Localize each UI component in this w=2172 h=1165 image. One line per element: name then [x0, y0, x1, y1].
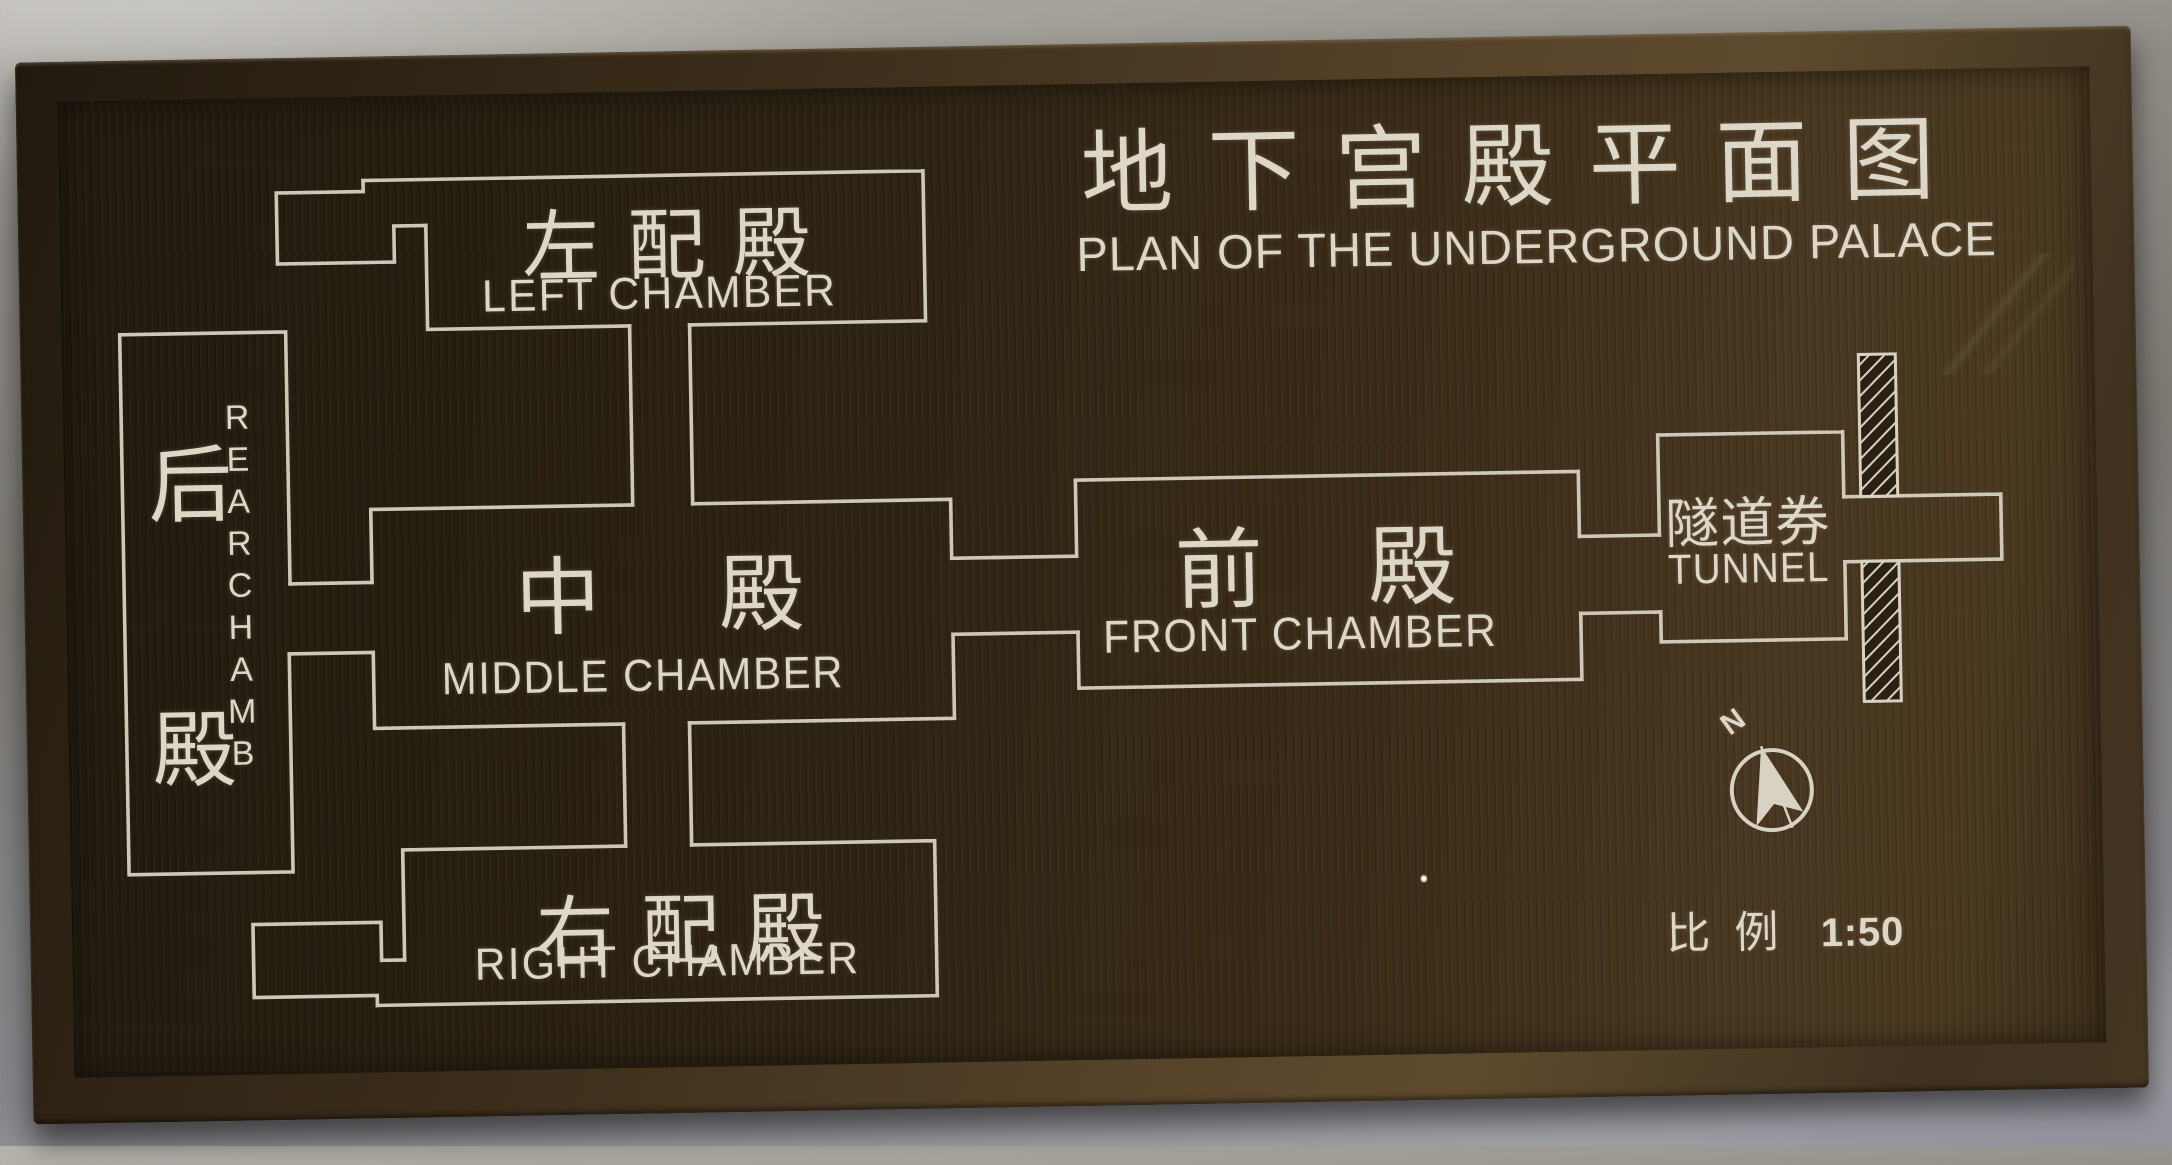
corridor-middle-right [624, 723, 692, 846]
tunnel-label-en: TUNNEL [1668, 543, 1830, 594]
plaque-scene: 地下宫殿平面图 PLAN OF THE UNDERGROUND PALACE 左… [0, 0, 2172, 1165]
scale-label: 比例 [1666, 907, 1803, 960]
compass-icon [1731, 745, 1812, 830]
right-chamber-label-en: RIGHT CHAMBER [474, 932, 861, 991]
tunnel-wall-hatch-upper [1858, 354, 1897, 497]
tunnel-wall-hatch-lower [1862, 561, 1901, 702]
front-chamber-label-en: FRONT CHAMBER [1103, 603, 1498, 664]
right-antechamber-outline [253, 922, 405, 1008]
rear-chamber-label-en: REAR CHAMB [219, 396, 262, 775]
scale-note: 比例1:50 [1666, 894, 1905, 962]
dust-speck-highlight [1420, 874, 1427, 883]
entrance-corridor [1844, 494, 2002, 562]
corridor-left-middle [630, 325, 693, 505]
corridor-middle-front [994, 556, 1078, 633]
photo-of-plaque: { "sign": { "title": { "cn": "地下宫殿平面图", … [0, 0, 2172, 1146]
scale-value: 1:50 [1820, 910, 1904, 955]
corridor-front-tunnel [1579, 535, 1660, 613]
middle-chamber-label-cn: 中殿 [514, 523, 924, 653]
title-chinese: 地下宫殿平面图 [1080, 85, 1971, 233]
middle-chamber-label-en: MIDDLE CHAMBER [441, 646, 844, 705]
left-antechamber-outline [276, 179, 426, 264]
corridor-rear-middle [288, 582, 373, 653]
left-chamber-label-en: LEFT CHAMBER [482, 264, 838, 322]
